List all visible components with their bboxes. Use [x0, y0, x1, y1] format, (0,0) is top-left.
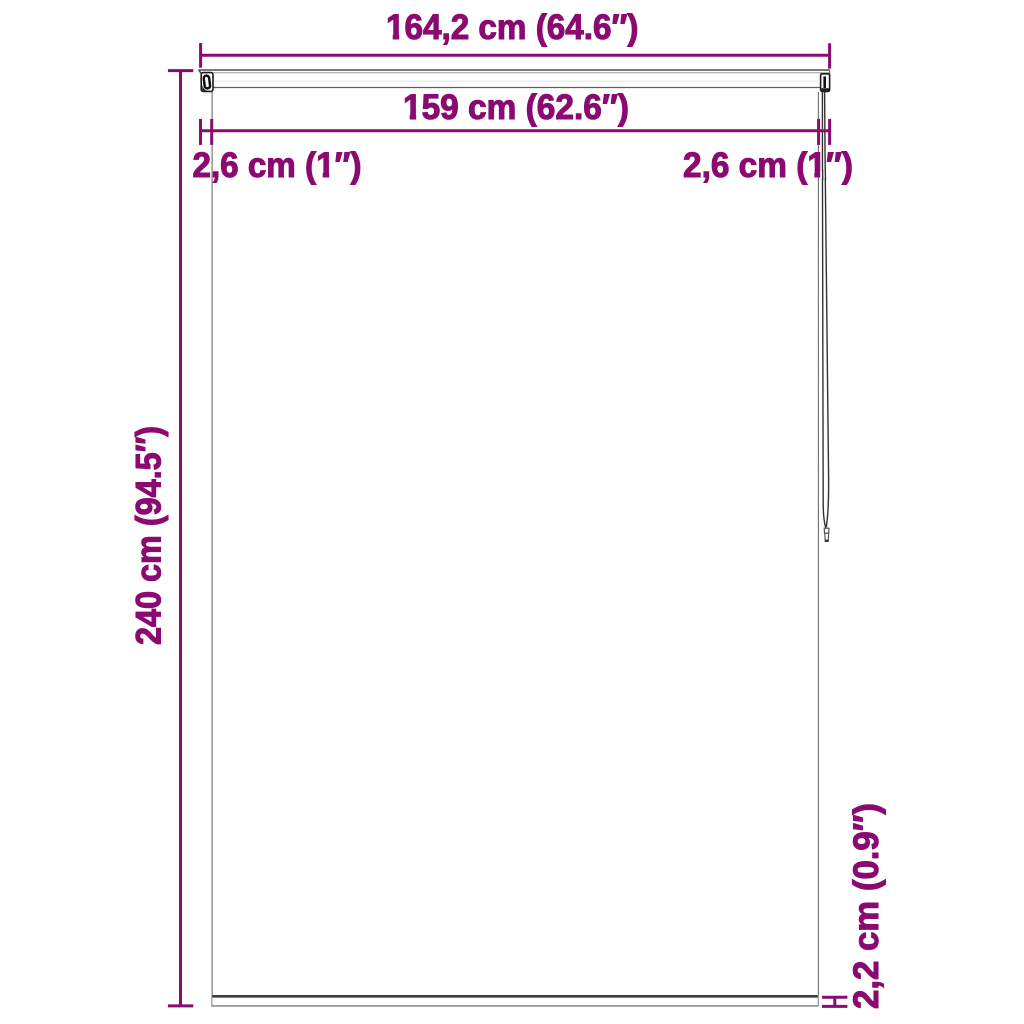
svg-text:2,6 cm (1″): 2,6 cm (1″) — [683, 145, 853, 185]
svg-text:2,2 cm (0.9″): 2,2 cm (0.9″) — [846, 803, 886, 1009]
svg-text:164,2 cm (64.6″): 164,2 cm (64.6″) — [386, 7, 639, 47]
svg-text:240 cm (94.5″): 240 cm (94.5″) — [129, 426, 169, 645]
svg-text:159 cm (62.6″): 159 cm (62.6″) — [403, 87, 629, 127]
svg-text:2,6 cm (1″): 2,6 cm (1″) — [193, 145, 362, 185]
